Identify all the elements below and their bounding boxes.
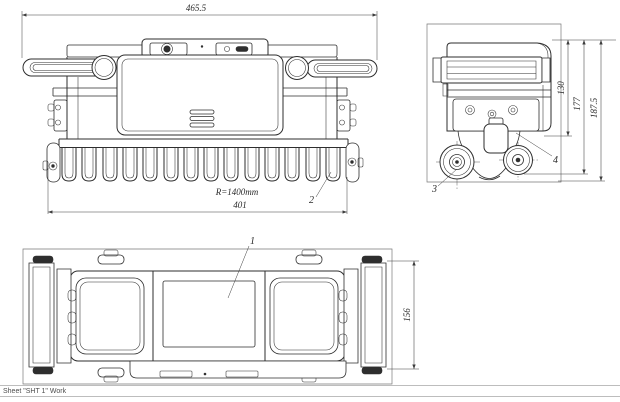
side-bracket-right: [337, 100, 356, 131]
grip-right: [361, 256, 386, 374]
handle-right: [286, 57, 378, 80]
dim-text-brush-width: 401: [233, 200, 247, 210]
power-switch-icon: [236, 47, 248, 52]
radius-annotation: R=1400mm: [215, 187, 259, 197]
brush-end-cap-left: [43, 143, 60, 182]
top-view: [23, 249, 392, 384]
callout-3-text: 3: [431, 184, 437, 195]
wheel-front: [436, 141, 480, 190]
handle-left: [23, 56, 116, 80]
dim-text-overall-height: 187.5: [589, 97, 599, 118]
handle-knob-right: [286, 57, 309, 80]
handle-rail-section: [433, 57, 550, 83]
drawing-sheet: 465.5 R=1400mm 401 2: [0, 0, 620, 402]
dim-text-body-height: 177: [572, 97, 582, 111]
side-bracket-left: [48, 100, 67, 131]
dim-text-overall-width: 465.5: [186, 3, 207, 13]
rail-knurl-right: [542, 58, 550, 82]
sheet-tab[interactable]: Sheet "SHT 1" Work: [0, 386, 620, 397]
grip-left: [29, 256, 54, 374]
brush-mount-bar: [59, 139, 348, 148]
front-view: [23, 39, 377, 182]
brush-end-cap-right: [346, 143, 363, 182]
callout-4-text: 4: [553, 155, 558, 166]
bottom-apron: [130, 361, 346, 378]
mount-plate-left: [57, 269, 71, 363]
sheet-tab-label: Sheet "SHT 1" Work: [0, 388, 66, 395]
mic-hole-icon: [201, 46, 203, 48]
rail-knurl-left: [433, 58, 441, 82]
callout-2-text: 2: [309, 195, 314, 206]
callout-1-text: 1: [250, 236, 255, 247]
status-bar: Sheet "SHT 1" Work: [0, 385, 620, 402]
dim-text-handle-height: 130: [556, 81, 566, 95]
dimension-handle-height: 130: [544, 40, 616, 136]
radius-text: R=1400mm: [215, 187, 259, 197]
bristle-row: [62, 148, 340, 181]
handle-knob-left: [92, 56, 116, 80]
dim-text-depth: 156: [402, 308, 412, 322]
mount-plate-right: [344, 269, 358, 363]
side-view: [427, 24, 561, 190]
drawing-canvas[interactable]: 465.5 R=1400mm 401 2: [0, 0, 620, 402]
roller-arc: [472, 165, 508, 180]
screen-panel: [117, 55, 283, 135]
